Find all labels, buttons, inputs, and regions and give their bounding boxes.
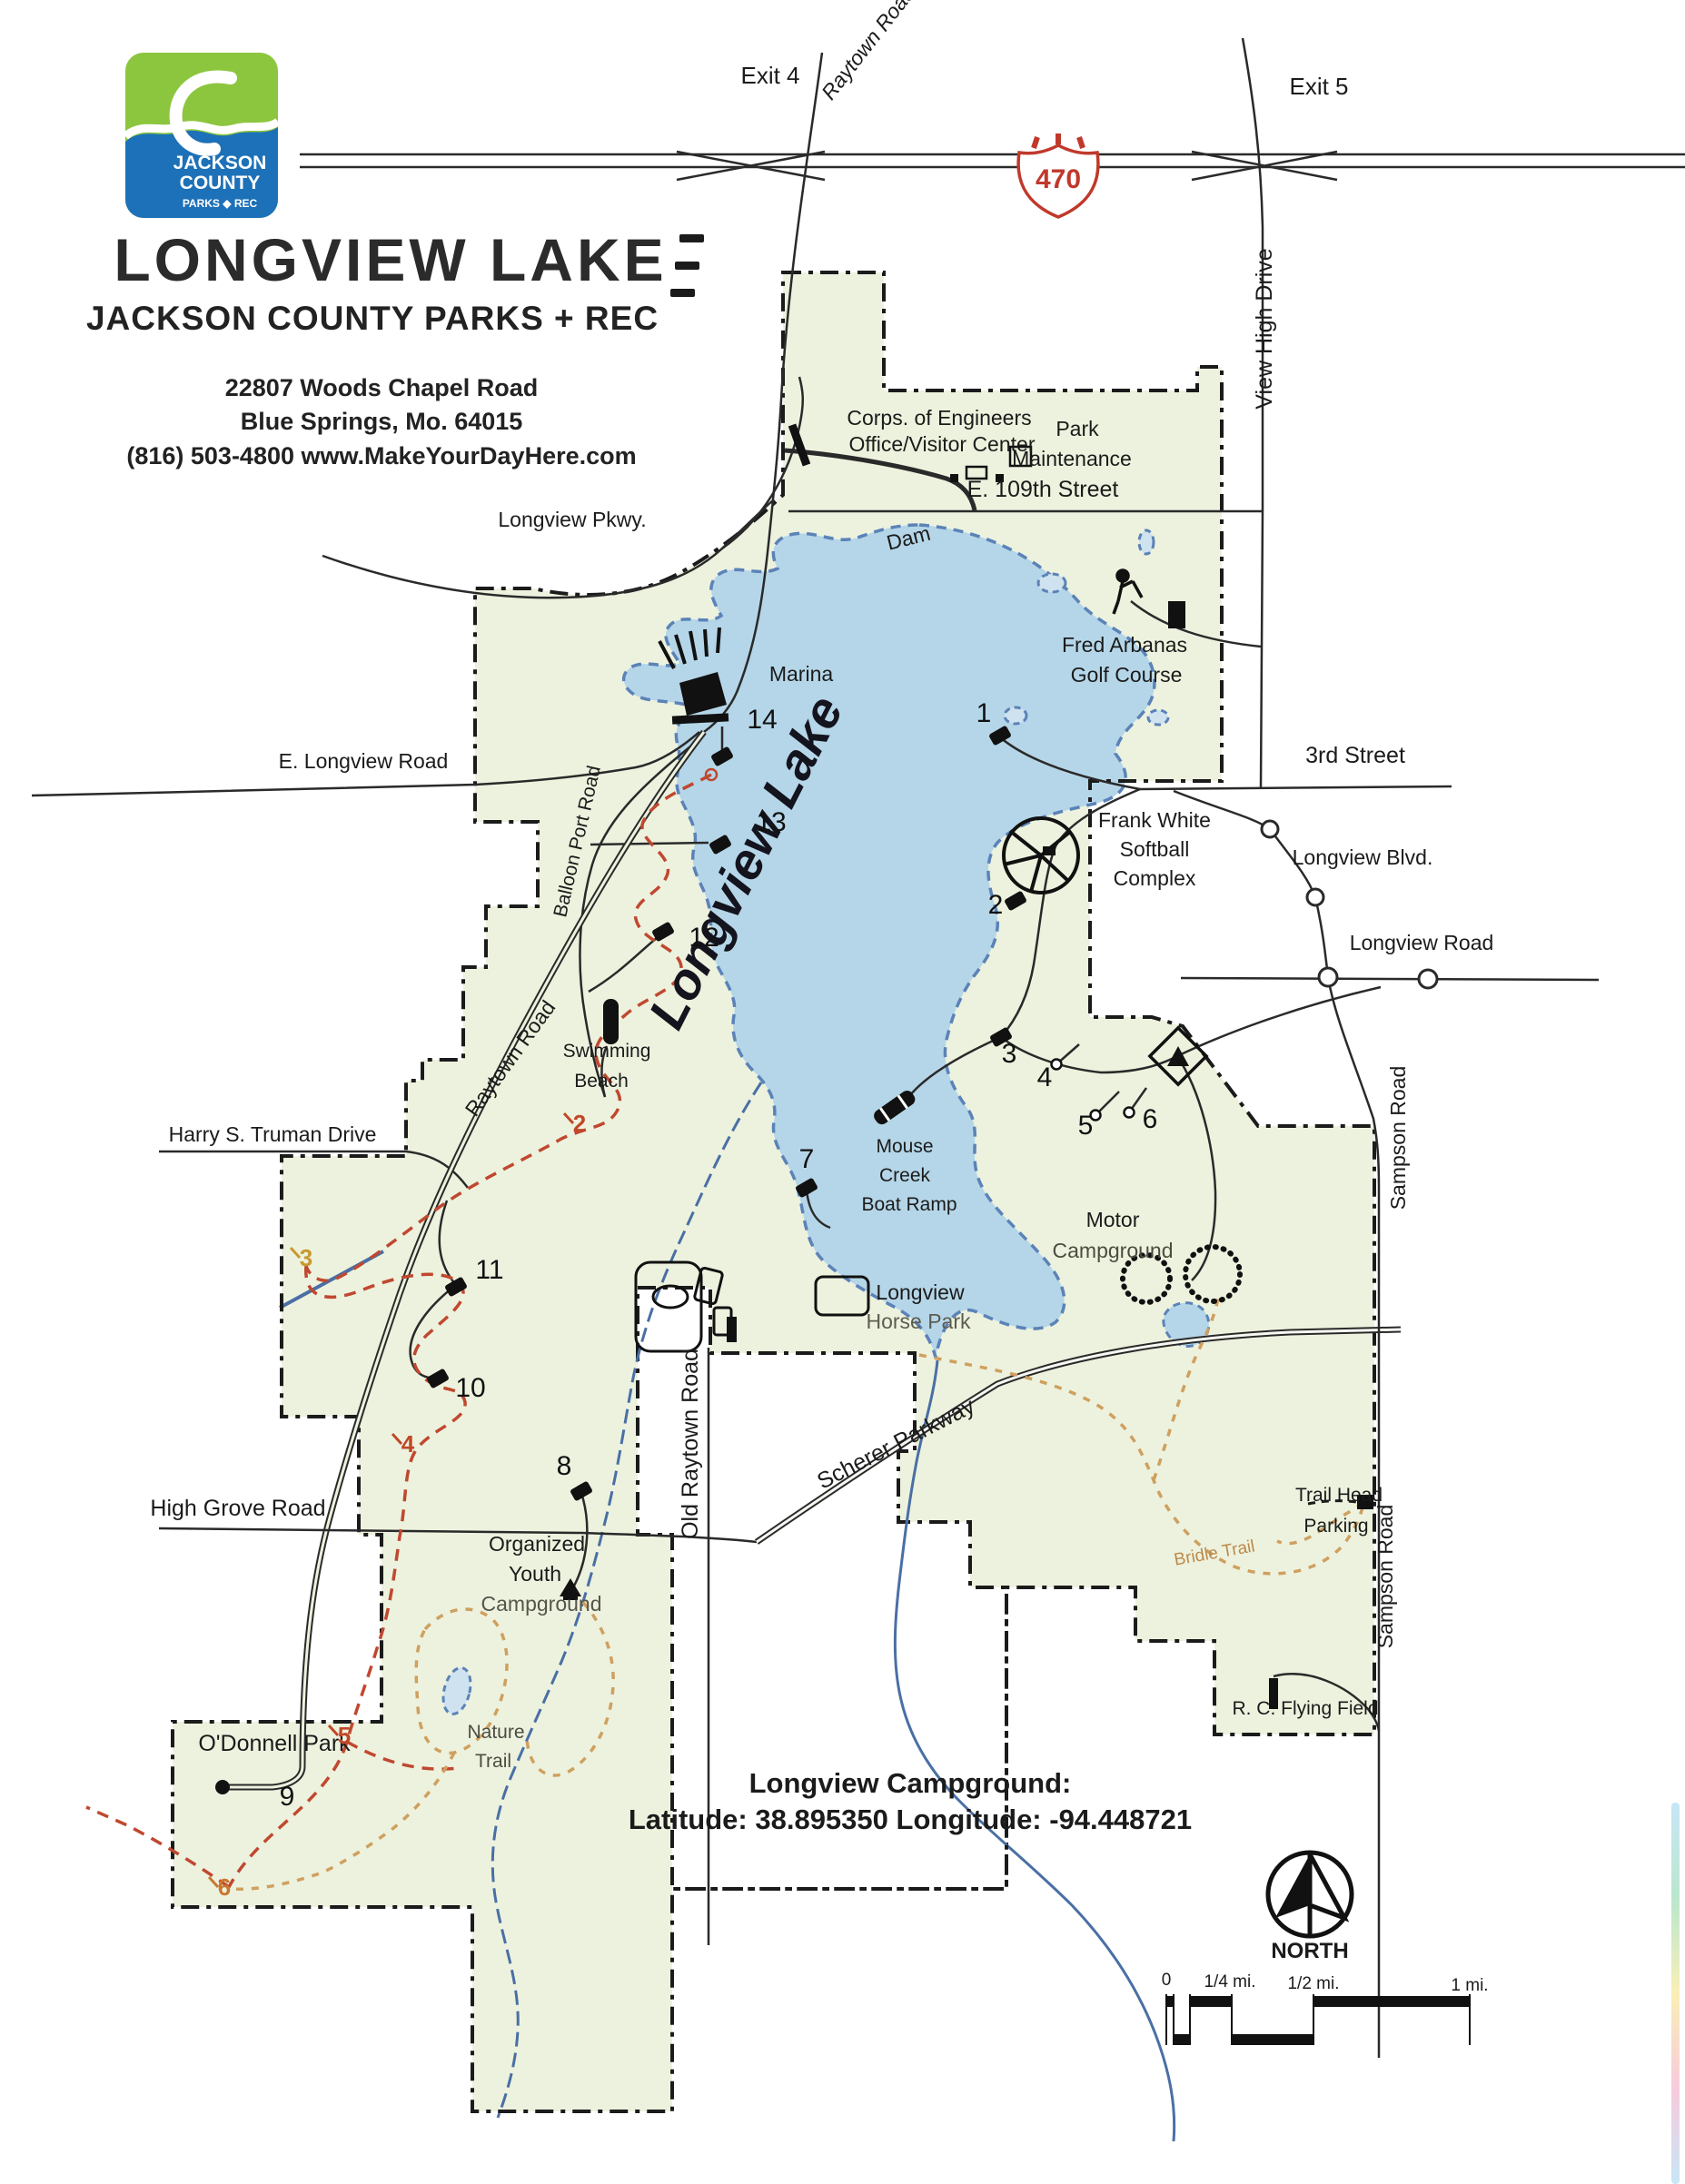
trail-head-label-1: Trail Head: [1295, 1485, 1383, 1506]
e-109th-street-label: E. 109th Street: [967, 477, 1119, 502]
marker-14-number: 14: [747, 705, 777, 735]
youth-campground-label-3: Campground: [481, 1592, 602, 1616]
trail-marker-3-number: 3: [300, 1244, 312, 1271]
harry-s-truman-drive-label: Harry S. Truman Drive: [169, 1122, 377, 1146]
trail-head-label-2: Parking: [1303, 1516, 1368, 1537]
swimming-beach-label-2: Beach: [574, 1071, 629, 1092]
corps-office-label-2: Office/Visitor Center: [849, 432, 1036, 456]
view-high-drive: [1243, 38, 1263, 788]
marker-9-icon: [215, 1780, 230, 1794]
nature-trail-label-2: Trail: [475, 1751, 511, 1772]
address-line-2: Blue Springs, Mo. 64015: [64, 408, 699, 436]
logo-text-2: COUNTY: [180, 173, 261, 193]
marker-13-number: 13: [756, 807, 786, 837]
scale-bar: [1166, 1994, 1470, 2045]
north-arrow-icon: [1268, 1853, 1352, 1936]
trail-marker-5-number: 5: [338, 1722, 351, 1749]
frank-white-label-1: Frank White: [1098, 808, 1211, 832]
marker-5-number: 5: [1078, 1111, 1094, 1141]
sampson-road-north-label: Sampson Road: [1386, 1066, 1410, 1211]
logo-text-3: PARKS ◆ REC: [183, 197, 258, 210]
horse-park-label-1: Longview: [876, 1280, 965, 1304]
sampson-road-south-label: Sampson Road: [1373, 1505, 1397, 1649]
marker-11-number: 11: [475, 1255, 503, 1285]
horse-park-label-2: Horse Park: [866, 1309, 971, 1333]
longview-pkwy-label: Longview Pkwy.: [498, 508, 646, 531]
youth-campground-label-2: Youth: [509, 1562, 561, 1586]
park-maintenance-label-2: Maintenance: [1012, 447, 1132, 470]
longview-road: [1181, 978, 1599, 980]
marker-4-icon: [1052, 1060, 1062, 1070]
nature-trail-label-1: Nature: [467, 1722, 524, 1743]
marker-7-number: 7: [799, 1144, 815, 1174]
mouse-creek-label-1: Mouse: [876, 1136, 933, 1157]
trail-marker-4-number: 4: [401, 1430, 415, 1458]
address-line-1: 22807 Woods Chapel Road: [64, 374, 699, 402]
3rd-street-label: 3rd Street: [1305, 743, 1405, 768]
golf-course-label-2: Golf Course: [1071, 663, 1183, 687]
marker-6-icon: [1125, 1108, 1135, 1118]
logo-text-1: JACKSON: [173, 153, 267, 173]
frank-white-label-3: Complex: [1114, 866, 1196, 890]
3rd-street: [1140, 786, 1452, 789]
scale-half-label: 1/2 mi.: [1287, 1974, 1339, 1993]
marker-4-number: 4: [1037, 1062, 1053, 1092]
exit5-ramps: [1192, 152, 1337, 180]
mouse-creek-label-2: Creek: [879, 1165, 931, 1186]
marker-3-number: 3: [1002, 1039, 1017, 1069]
rc-flying-field-label: R. C. Flying Field: [1232, 1698, 1378, 1719]
marker-1-number: 1: [976, 698, 992, 728]
park-maintenance-label-1: Park: [1056, 417, 1099, 440]
scale-quarter-label: 1/4 mi.: [1204, 1972, 1255, 1991]
frank-white-label-2: Softball: [1120, 837, 1190, 861]
exit-4-label: Exit 4: [740, 62, 799, 89]
campground-coords-value: Latitude: 38.895350 Longitude: -94.44872…: [629, 1804, 1192, 1835]
marker-8-number: 8: [557, 1451, 572, 1481]
old-raytown-road-label: Old Raytown Road: [678, 1349, 703, 1539]
scale-0-label: 0: [1162, 1971, 1172, 1990]
marker-2-number: 2: [988, 890, 1004, 920]
golf-clubhouse-icon: [1168, 601, 1185, 628]
exit4-ramps: [677, 152, 825, 180]
scan-artifact-strip: [1671, 1803, 1680, 2184]
motor-campground-label-1: Motor: [1086, 1208, 1140, 1231]
mouse-creek-label-3: Boat Ramp: [861, 1194, 956, 1215]
marker-10-number: 10: [455, 1373, 485, 1403]
address-line-3: (816) 503-4800 www.MakeYourDayHere.com: [64, 442, 699, 470]
campground-coords-title: Longview Campground:: [749, 1767, 1072, 1799]
page-subtitle: JACKSON COUNTY PARKS + REC: [55, 300, 690, 338]
interstate-470-shield-label: 470: [1036, 164, 1081, 194]
youth-campground-label-1: Organized: [489, 1532, 585, 1556]
marker-6-number: 6: [1143, 1104, 1158, 1134]
trail-marker-6-number: 6: [218, 1873, 231, 1901]
trail-marker-2-number: 2: [573, 1110, 586, 1137]
view-high-drive-label: View High Drive: [1252, 248, 1277, 409]
raytown-road-north-label: Raytown Road: [817, 0, 920, 104]
jackson-county-parks-logo: JACKSON COUNTY PARKS ◆ REC: [125, 53, 278, 218]
longview-blvd-label: Longview Blvd.: [1293, 845, 1433, 869]
motor-campground-label-2: Campground: [1053, 1239, 1174, 1262]
swimming-beach-icon: [603, 999, 619, 1044]
page-title: LONGVIEW LAKE: [73, 225, 709, 294]
marker-9-number: 9: [280, 1782, 295, 1812]
north-label: NORTH: [1271, 1939, 1348, 1963]
marina-label: Marina: [769, 662, 834, 686]
swimming-beach-label-1: Swimming: [563, 1041, 651, 1062]
exit-5-label: Exit 5: [1289, 73, 1348, 100]
odonnell-park-label: O'Donnell Park: [198, 1731, 351, 1756]
marker-12-number: 12: [689, 923, 719, 953]
longview-road-label: Longview Road: [1350, 931, 1494, 954]
corps-office-label-1: Corps. of Engineers: [847, 406, 1031, 430]
golf-course-label-1: Fred Arbanas: [1062, 633, 1187, 657]
high-grove-road-label: High Grove Road: [150, 1496, 325, 1521]
e-longview-road-label: E. Longview Road: [279, 749, 449, 773]
scale-mile-label: 1 mi.: [1451, 1976, 1488, 1995]
